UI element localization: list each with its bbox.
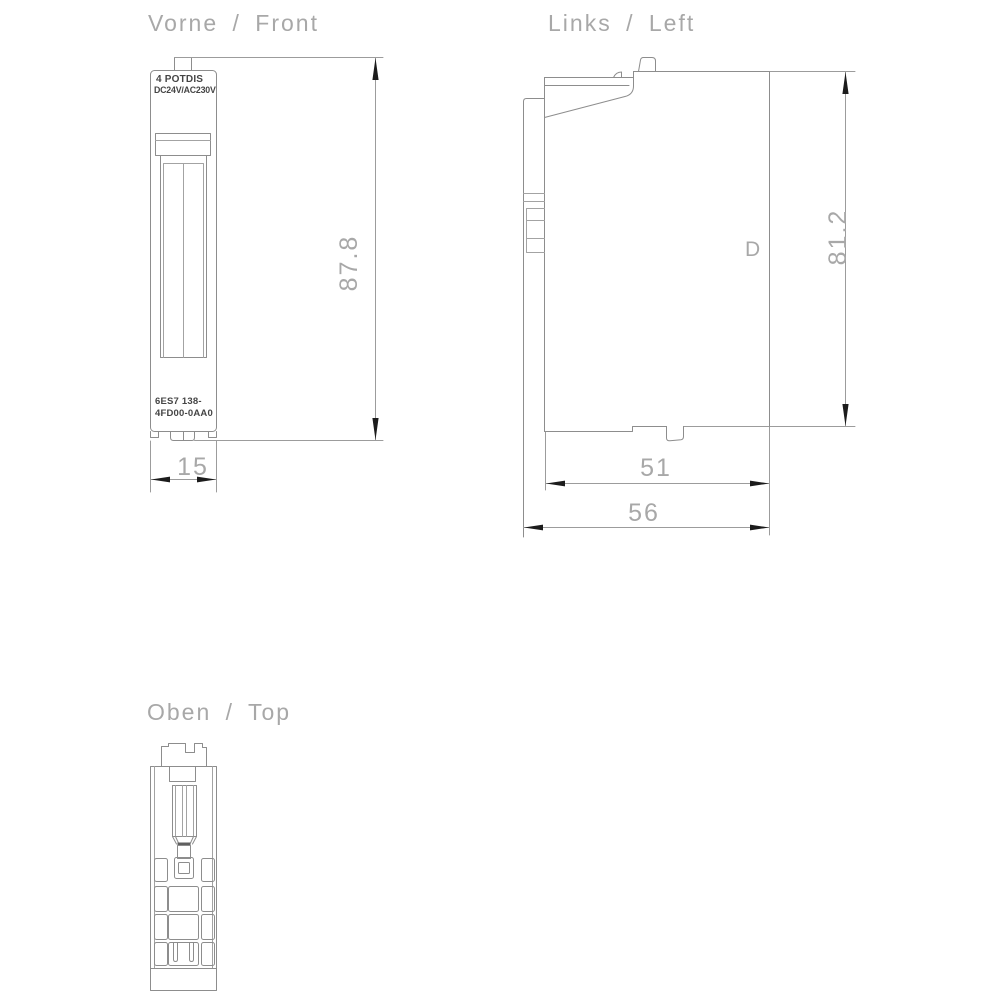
top-cell-legs	[174, 943, 194, 962]
left-front-step-lines	[545, 78, 634, 86]
top-body-inner-walls	[155, 767, 213, 969]
technical-drawing-page: Vorne / Front 4 POTDIS DC24V/AC230V 6ES7…	[0, 0, 1000, 1000]
top-view: Oben / Top	[147, 699, 291, 991]
dim-81-2-label: 81.2	[824, 209, 852, 266]
dim-51-label: 51	[640, 454, 672, 482]
view-title-top: Oben / Top	[147, 699, 291, 725]
left-depth-56-dimension: 56	[524, 499, 770, 530]
front-bottom-notch-right	[209, 432, 217, 438]
top-cell	[175, 858, 194, 879]
left-height-dimension: 81.2	[824, 72, 852, 427]
part-number-line2: 4FD00-0AA0	[155, 408, 213, 419]
module-type-label: 4 POTDIS	[156, 74, 203, 85]
dimension-arrow-right	[750, 525, 769, 531]
top-cell	[155, 859, 168, 882]
dimension-arrow-left	[546, 481, 565, 487]
dimension-arrow-right	[750, 481, 769, 487]
left-view: Links / Left D	[524, 10, 856, 537]
left-bottom-latch	[667, 427, 684, 441]
top-cell	[155, 887, 168, 912]
dim-56-label: 56	[628, 499, 660, 527]
left-din-clip-latch	[527, 209, 545, 253]
technical-drawing-canvas: Vorne / Front 4 POTDIS DC24V/AC230V 6ES7…	[0, 0, 1000, 1000]
dim-15-label: 15	[177, 453, 209, 481]
top-cell	[169, 887, 199, 912]
left-din-clip-lines	[524, 194, 545, 202]
top-terminal-ribs	[176, 786, 194, 837]
top-bus-connector	[162, 744, 207, 767]
view-title-left: Links / Left	[548, 10, 695, 36]
view-title-front: Vorne / Front	[148, 10, 319, 36]
dim-87-8-label: 87.8	[335, 235, 363, 292]
connector-marking-d: D	[745, 238, 760, 261]
top-terminal-box	[178, 846, 191, 859]
module-voltage-label: DC24V/AC230V	[154, 85, 216, 95]
front-height-dimension: 87.8	[175, 58, 384, 441]
left-din-clip-edge	[524, 99, 545, 538]
top-terminal-slot	[173, 786, 197, 837]
front-width-dimension: 15	[151, 441, 217, 492]
front-terminal-cap	[156, 134, 211, 156]
front-bottom-notch-left	[151, 432, 159, 438]
part-number-line1: 6ES7 138-	[155, 396, 202, 407]
dimension-arrow-down	[372, 418, 378, 440]
front-terminal-slot-detail	[164, 164, 204, 358]
dimension-arrow-left	[524, 525, 543, 531]
top-cell	[155, 915, 168, 940]
left-front-step-slant	[545, 72, 634, 118]
top-cell	[155, 943, 168, 966]
left-bottom-edge	[545, 427, 667, 432]
top-cell	[169, 915, 199, 940]
dimension-arrow-left	[151, 477, 170, 483]
dimension-arrow-down	[842, 404, 848, 426]
front-top-tab	[175, 58, 192, 71]
front-bus-connector	[171, 432, 195, 441]
left-top-tab	[639, 58, 656, 72]
front-view: Vorne / Front 4 POTDIS DC24V/AC230V 6ES7…	[148, 10, 319, 441]
dimension-arrow-up	[842, 72, 848, 94]
dimension-arrow-up	[372, 58, 378, 80]
top-recess	[170, 767, 196, 782]
top-cell-square	[179, 863, 190, 874]
left-latch-bump	[614, 72, 622, 78]
